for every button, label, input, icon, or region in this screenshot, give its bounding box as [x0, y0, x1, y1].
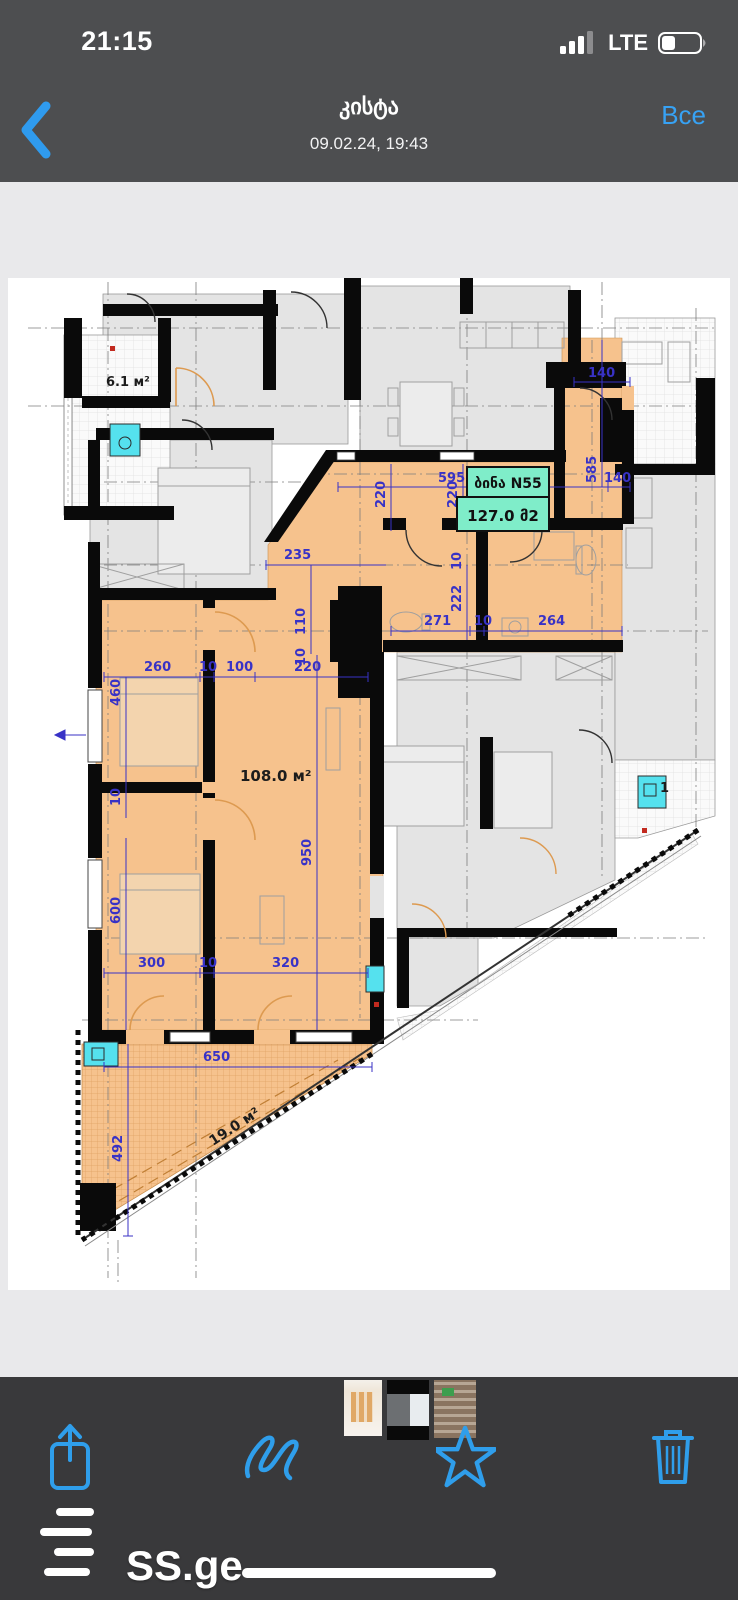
svg-text:320: 320	[272, 956, 299, 971]
unit-number-label: ბინა N55	[474, 476, 542, 492]
partial-label: 1	[660, 781, 669, 796]
svg-text:492: 492	[111, 1135, 126, 1162]
status-bar: 21:15 LTE	[0, 0, 738, 86]
svg-text:260: 260	[144, 660, 171, 675]
svg-text:950: 950	[300, 839, 315, 866]
svg-text:264: 264	[538, 614, 565, 629]
top-chrome: 21:15 LTE კისტა 09.0	[0, 0, 738, 182]
nav-bar: კისტა 09.02.24, 19:43 Все	[0, 86, 738, 182]
unit-label-box: ბინა N55 127.0 მ2	[457, 467, 549, 531]
svg-text:10: 10	[474, 614, 492, 629]
ssge-watermark-text: SS.ge	[126, 1542, 243, 1590]
svg-text:10: 10	[199, 660, 217, 675]
svg-text:222: 222	[450, 585, 465, 612]
svg-text:271: 271	[424, 614, 451, 629]
main-area-label: 108.0 м²	[240, 767, 312, 785]
svg-text:100: 100	[226, 660, 253, 675]
battery-icon	[658, 30, 710, 56]
all-photos-button[interactable]: Все	[661, 100, 706, 131]
share-icon[interactable]	[44, 1422, 96, 1494]
photo-timestamp: 09.02.24, 19:43	[169, 134, 569, 154]
svg-text:10: 10	[199, 956, 217, 971]
star-icon[interactable]	[436, 1422, 496, 1496]
unit-area-label: 127.0 მ2	[467, 507, 539, 525]
ssge-watermark: SS.ge	[40, 1504, 243, 1590]
svg-text:10: 10	[109, 788, 124, 806]
svg-text:220: 220	[294, 660, 321, 675]
svg-text:10: 10	[450, 552, 465, 570]
photo-view[interactable]: 595 220 220 585 140 140 235 110 10 260 1…	[8, 278, 730, 1290]
bottom-chrome: SS.ge	[0, 1377, 738, 1600]
photo-toolbar: SS.ge	[0, 1422, 738, 1532]
network-type-label: LTE	[608, 30, 648, 56]
svg-text:235: 235	[284, 548, 311, 563]
page-title: კისტა	[169, 94, 569, 120]
ios-photo-viewer: 21:15 LTE კისტა 09.0	[0, 0, 738, 1600]
svg-text:110: 110	[294, 608, 309, 635]
floorplan-image: 595 220 220 585 140 140 235 110 10 260 1…	[8, 278, 730, 1290]
svg-text:140: 140	[604, 471, 631, 486]
cellular-signal-icon	[560, 30, 598, 56]
svg-text:140: 140	[588, 366, 615, 381]
svg-text:300: 300	[138, 956, 165, 971]
ssge-logo-lines-icon	[40, 1504, 112, 1590]
balcony-area-label: 6.1 м²	[106, 375, 150, 390]
back-button[interactable]	[18, 100, 54, 160]
svg-text:460: 460	[109, 679, 124, 706]
markup-icon[interactable]	[242, 1428, 304, 1486]
svg-text:650: 650	[203, 1050, 230, 1065]
status-time: 21:15	[62, 26, 172, 57]
svg-text:585: 585	[585, 456, 600, 483]
svg-text:220: 220	[374, 481, 389, 508]
svg-text:600: 600	[109, 897, 124, 924]
trash-icon[interactable]	[648, 1424, 698, 1488]
home-indicator[interactable]	[242, 1568, 496, 1578]
